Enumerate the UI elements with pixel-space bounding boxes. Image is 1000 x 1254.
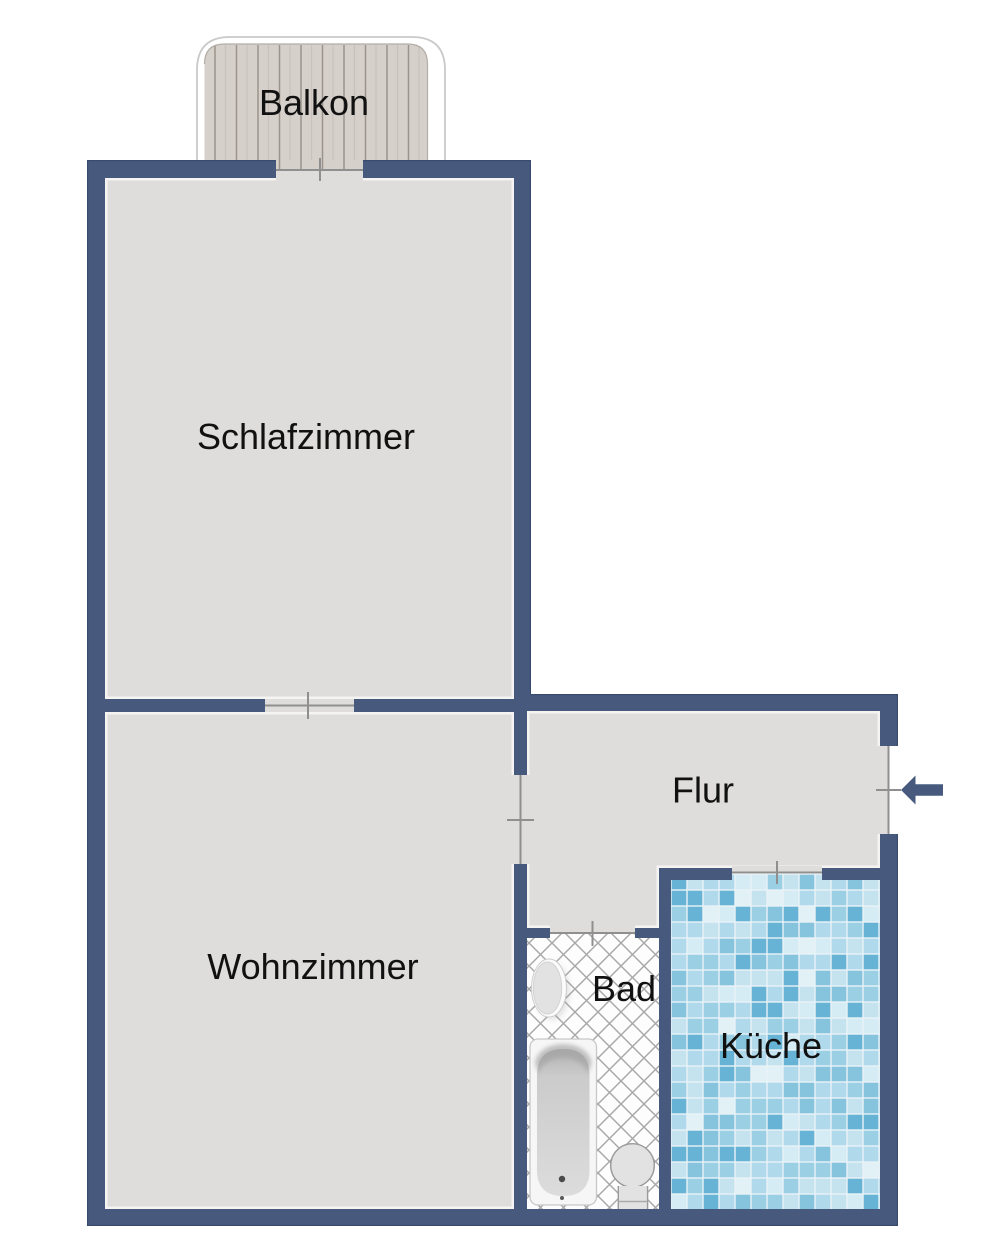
svg-text:Bad: Bad <box>592 968 656 1009</box>
svg-text:Küche: Küche <box>720 1025 822 1066</box>
svg-text:Flur: Flur <box>672 770 734 811</box>
svg-text:Wohnzimmer: Wohnzimmer <box>207 946 418 987</box>
svg-text:Balkon: Balkon <box>259 82 369 123</box>
svg-text:Schlafzimmer: Schlafzimmer <box>197 416 415 457</box>
